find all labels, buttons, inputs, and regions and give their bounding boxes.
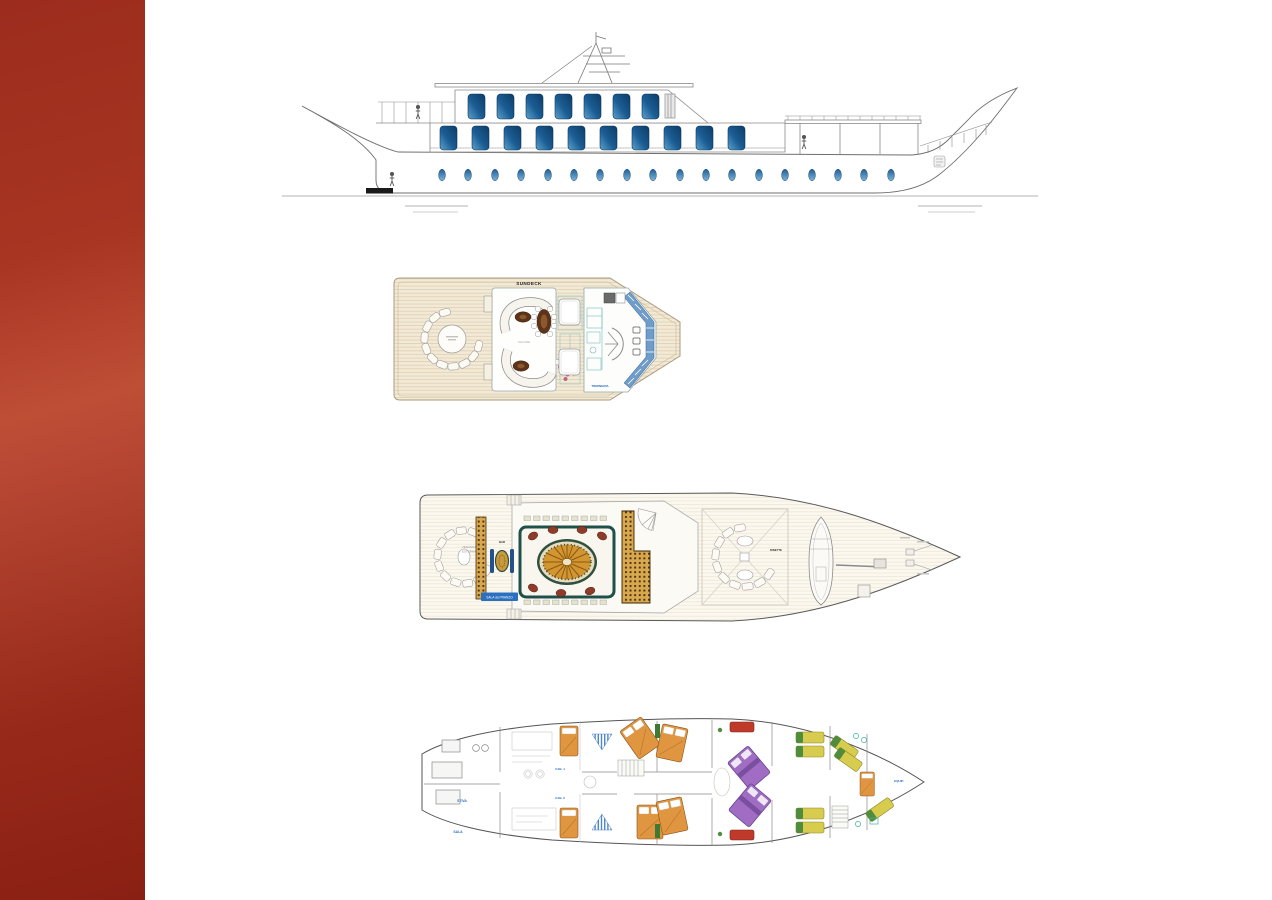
brochure-page: SUNDECK bbox=[0, 0, 1272, 900]
cocktail-table-forward-top bbox=[519, 315, 526, 319]
aft-bar-gold-strip bbox=[476, 517, 486, 599]
red-sofa-bottom bbox=[730, 830, 754, 840]
wardrobe-green-bottom bbox=[655, 824, 660, 838]
timoneria-label: TIMONERIA bbox=[591, 384, 609, 388]
staircase-mid bbox=[618, 760, 644, 776]
veranda-label-line1: VERANDA bbox=[462, 545, 477, 549]
chart-console bbox=[604, 293, 625, 303]
ornate-dining-table bbox=[490, 549, 514, 573]
bow-crest-logo bbox=[934, 156, 945, 167]
plant-bottom bbox=[718, 832, 722, 836]
sala-label: SALA bbox=[453, 830, 463, 834]
swim-platform bbox=[366, 188, 393, 194]
cocktail-table-aft-top bbox=[517, 364, 524, 368]
cabina1-label: CAB. 1 bbox=[555, 767, 565, 771]
wardrobe-green-top bbox=[655, 724, 660, 738]
salone-label: SALONE bbox=[518, 340, 530, 344]
stiva-label: STIVA bbox=[457, 799, 467, 803]
yacht-side-profile bbox=[280, 28, 1040, 223]
sun-deck-plan: SUNDECK bbox=[388, 272, 688, 407]
radar-mast bbox=[542, 32, 630, 83]
staircase-bow bbox=[832, 806, 848, 828]
instrument-boxes bbox=[633, 327, 640, 355]
upper-deck-door bbox=[665, 94, 675, 118]
sala-pranzo-text: SALA da PRANZO bbox=[486, 596, 513, 600]
red-sofa-top bbox=[730, 722, 754, 732]
lower-deck-plan: STIVA SALA CAB. 1 CAB. 2 bbox=[412, 710, 932, 855]
veranda-label-line2: ESTERNA bbox=[462, 550, 476, 554]
main-deck-plan: VERANDA ESTERNA BAR SALA da PRANZO bbox=[412, 487, 967, 627]
sun-deck-title: SUNDECK bbox=[516, 281, 542, 286]
waterline bbox=[282, 196, 1038, 212]
bar-label: BAR bbox=[499, 540, 505, 544]
red-accent-sidebar bbox=[0, 0, 145, 900]
dinette-label: DINETTE bbox=[770, 548, 782, 552]
sala-pranzo-label: SALA da PRANZO bbox=[481, 593, 518, 602]
equipaggio-label: EQUIP. bbox=[894, 779, 904, 783]
plant-top bbox=[718, 728, 722, 732]
cabina2-label: CAB. 2 bbox=[555, 796, 565, 800]
